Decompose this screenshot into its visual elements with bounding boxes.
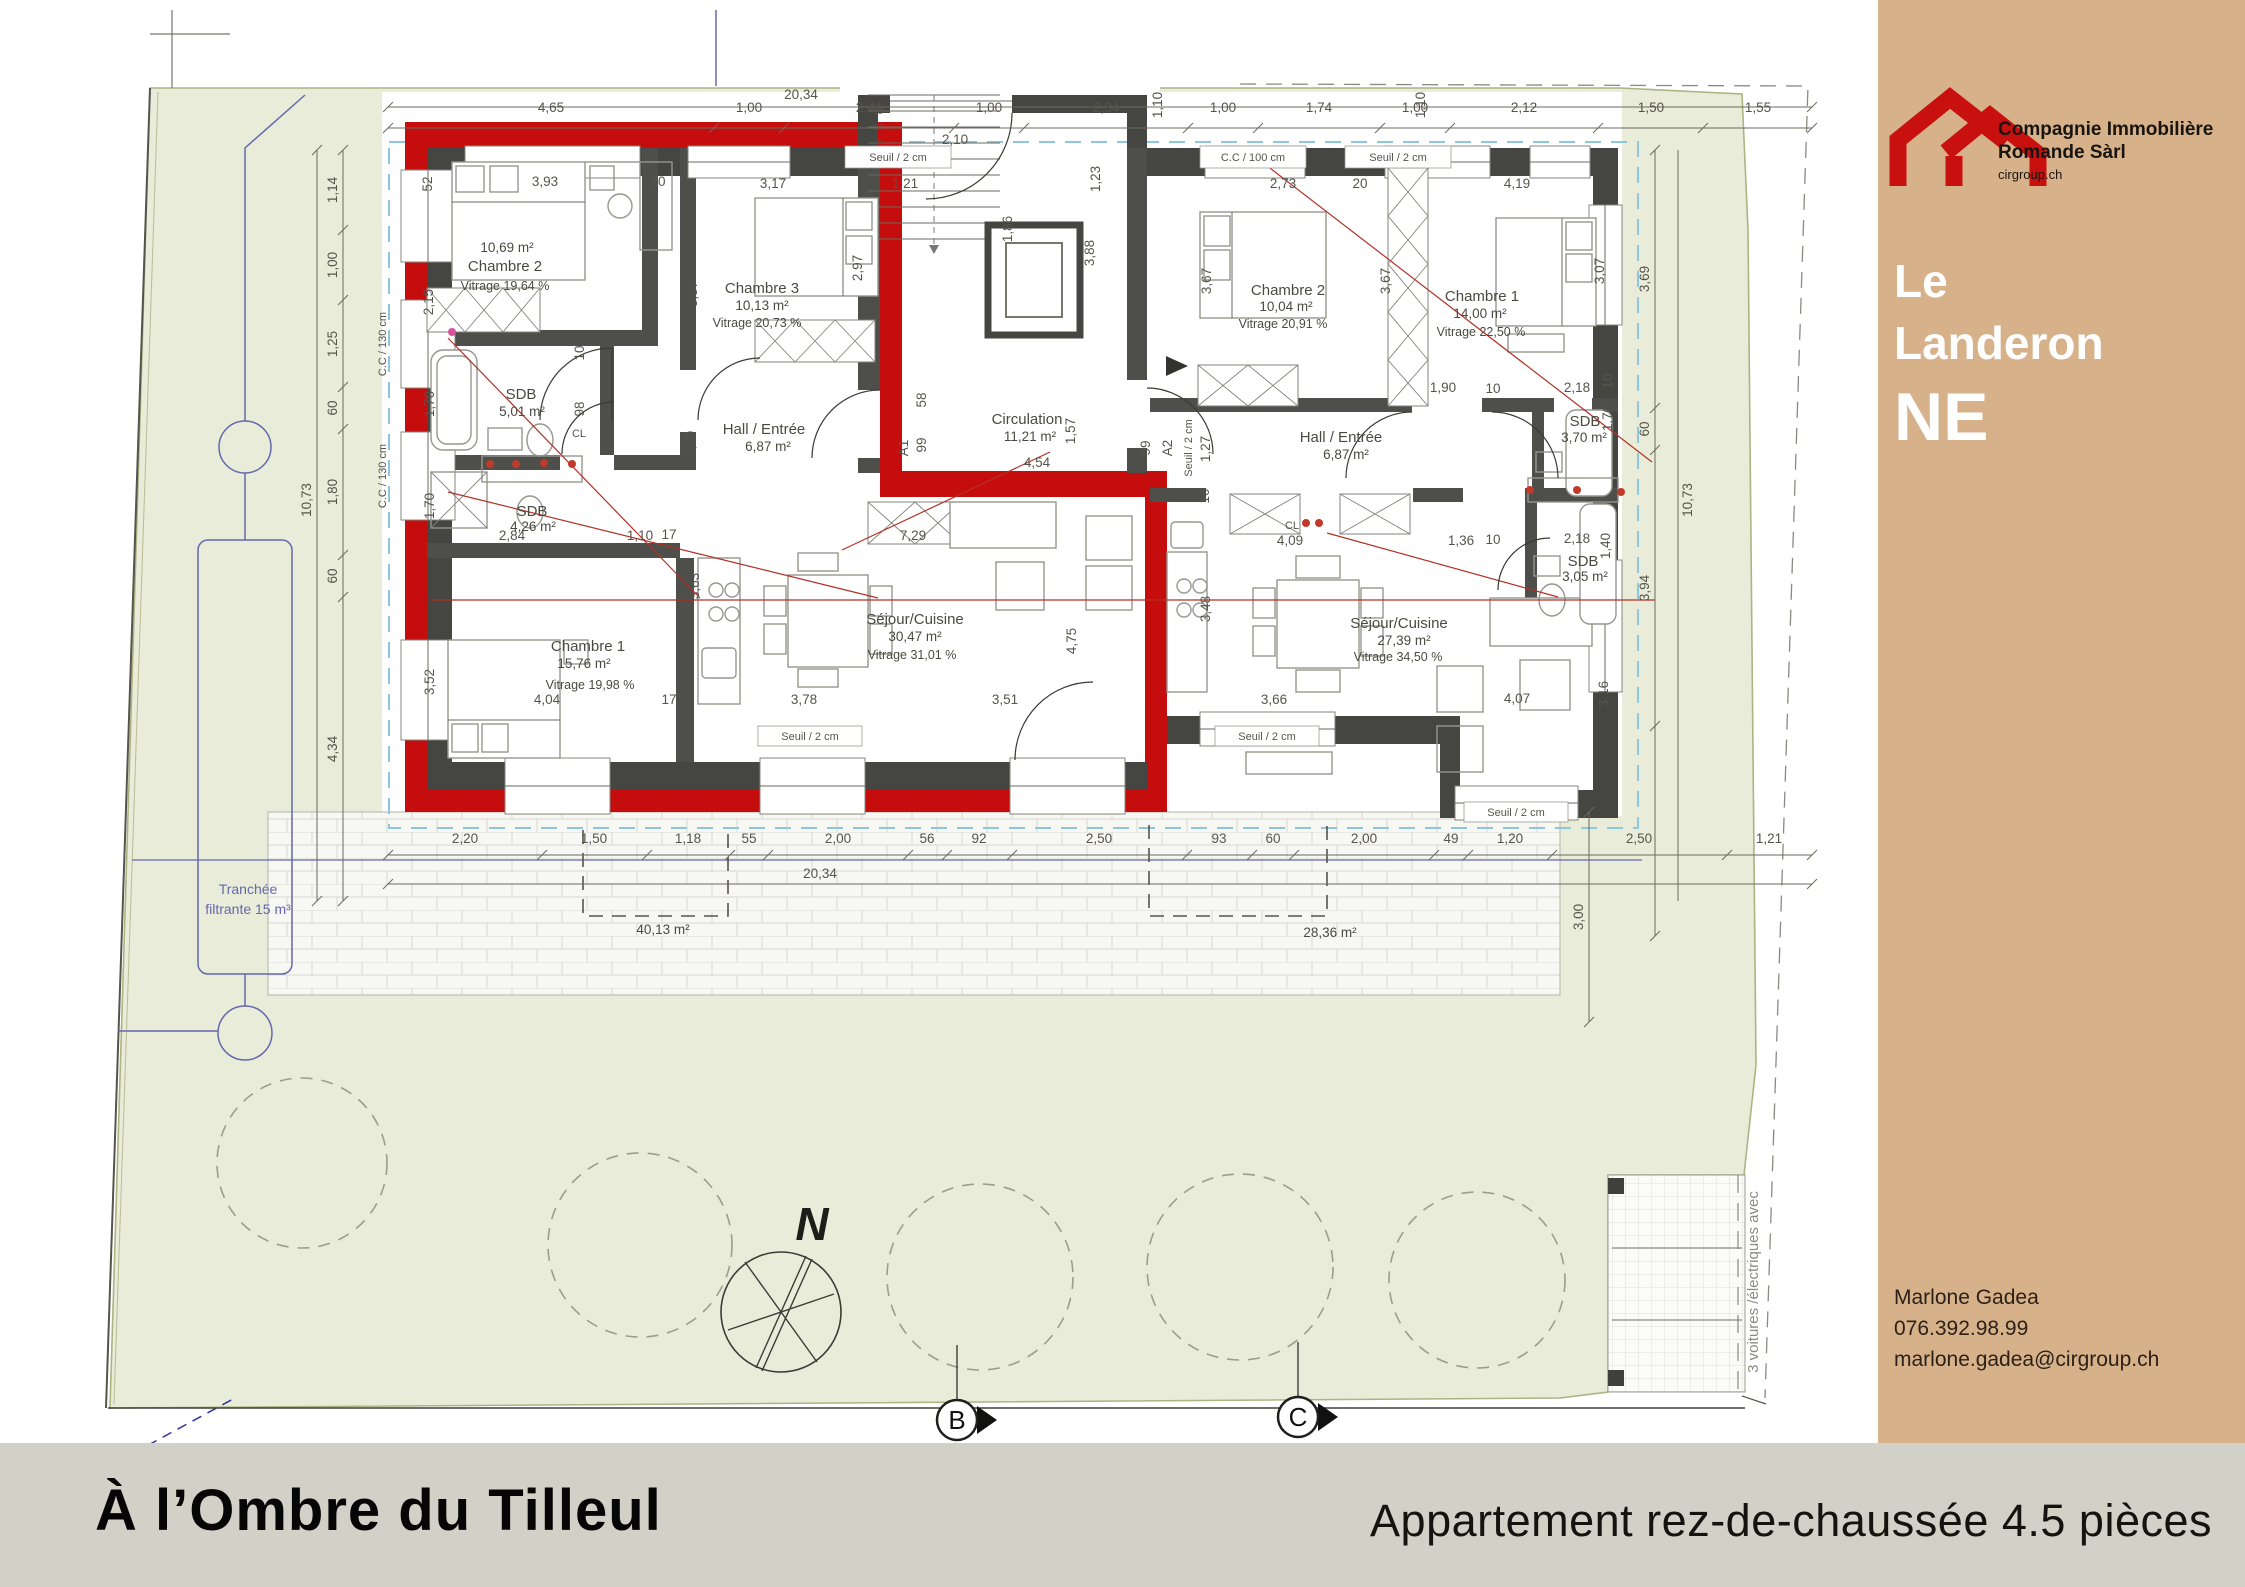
axis-b-label: B bbox=[948, 1405, 965, 1435]
svg-text:3,66: 3,66 bbox=[1261, 692, 1287, 707]
page: { "sidebar": { "logo": {"company_line1":… bbox=[0, 0, 2245, 1587]
svg-text:Vitrage 20,91 %: Vitrage 20,91 % bbox=[1239, 317, 1328, 331]
svg-text:Seuil / 2 cm: Seuil / 2 cm bbox=[1487, 807, 1544, 819]
svg-text:20: 20 bbox=[1352, 176, 1367, 191]
svg-text:Tranchée: Tranchée bbox=[219, 881, 278, 897]
svg-text:filtrante 15 m³: filtrante 15 m³ bbox=[205, 901, 291, 917]
svg-text:1,10: 1,10 bbox=[1150, 92, 1165, 118]
svg-text:3,05 m²: 3,05 m² bbox=[1562, 569, 1608, 584]
svg-text:4,26 m²: 4,26 m² bbox=[510, 519, 556, 534]
svg-text:Vitrage 31,01 %: Vitrage 31,01 % bbox=[868, 648, 957, 662]
svg-text:93: 93 bbox=[1211, 831, 1226, 846]
svg-text:3,69: 3,69 bbox=[1637, 266, 1652, 292]
svg-text:2,18: 2,18 bbox=[1564, 380, 1590, 395]
svg-text:1,36: 1,36 bbox=[1448, 533, 1474, 548]
svg-text:Seuil / 2 cm: Seuil / 2 cm bbox=[869, 152, 926, 164]
svg-text:60: 60 bbox=[325, 568, 340, 583]
svg-text:3,63: 3,63 bbox=[687, 573, 702, 599]
svg-text:10: 10 bbox=[1600, 373, 1615, 388]
title-line1: Le bbox=[1894, 250, 2104, 312]
svg-text:7,29: 7,29 bbox=[900, 528, 926, 543]
svg-text:4,19: 4,19 bbox=[1504, 176, 1530, 191]
svg-text:2,00: 2,00 bbox=[1351, 831, 1377, 846]
svg-text:28,36 m²: 28,36 m² bbox=[1303, 925, 1357, 940]
svg-text:1,21: 1,21 bbox=[892, 176, 918, 191]
svg-text:1,27: 1,27 bbox=[1198, 436, 1213, 462]
svg-text:40,13 m²: 40,13 m² bbox=[636, 922, 690, 937]
closet-label: CL bbox=[572, 428, 586, 440]
svg-text:10,73: 10,73 bbox=[1680, 483, 1695, 517]
svg-text:4,54: 4,54 bbox=[1024, 455, 1051, 470]
svg-text:52: 52 bbox=[420, 176, 435, 191]
company-logo-text: Compagnie Immobilière Romande Sàrl cirgr… bbox=[1998, 118, 2213, 182]
company-name-line2: Romande Sàrl bbox=[1998, 141, 2213, 164]
svg-text:Vitrage 19,98 %: Vitrage 19,98 % bbox=[546, 678, 635, 692]
svg-text:10,73: 10,73 bbox=[299, 483, 314, 517]
sidebar: Compagnie Immobilière Romande Sàrl cirgr… bbox=[1878, 0, 2245, 1443]
svg-text:C.C / 130 cm: C.C / 130 cm bbox=[377, 312, 389, 376]
svg-text:10,13 m²: 10,13 m² bbox=[735, 298, 789, 313]
svg-text:1,55: 1,55 bbox=[1745, 100, 1771, 115]
svg-text:99: 99 bbox=[914, 437, 929, 452]
svg-text:20,34: 20,34 bbox=[784, 87, 818, 102]
svg-text:4,65: 4,65 bbox=[538, 100, 564, 115]
title-line2: Landeron bbox=[1894, 312, 2104, 374]
svg-text:SDB: SDB bbox=[517, 503, 548, 520]
svg-text:1,57: 1,57 bbox=[1063, 418, 1078, 444]
svg-text:2,97: 2,97 bbox=[850, 255, 865, 281]
svg-text:A1: A1 bbox=[896, 440, 911, 457]
svg-text:27,39 m²: 27,39 m² bbox=[1377, 633, 1431, 648]
svg-text:1,21: 1,21 bbox=[1756, 831, 1782, 846]
svg-text:SDB: SDB bbox=[1570, 413, 1601, 430]
svg-text:1,10: 1,10 bbox=[627, 528, 653, 543]
svg-text:Seuil / 2 cm: Seuil / 2 cm bbox=[781, 731, 838, 743]
svg-text:17: 17 bbox=[661, 527, 676, 542]
svg-text:20,34: 20,34 bbox=[803, 866, 837, 881]
svg-text:1,50: 1,50 bbox=[581, 831, 607, 846]
svg-text:2,00: 2,00 bbox=[825, 831, 851, 846]
svg-text:4,09: 4,09 bbox=[1277, 533, 1303, 548]
svg-text:6,87 m²: 6,87 m² bbox=[745, 439, 791, 454]
svg-text:3,00: 3,00 bbox=[1571, 904, 1586, 930]
svg-text:1,00: 1,00 bbox=[325, 252, 340, 278]
svg-text:4,34: 4,34 bbox=[325, 735, 340, 762]
svg-text:3,51: 3,51 bbox=[992, 692, 1018, 707]
svg-text:1,23: 1,23 bbox=[1088, 166, 1103, 192]
svg-text:2,34: 2,34 bbox=[1093, 100, 1120, 115]
svg-text:1,25: 1,25 bbox=[325, 331, 340, 357]
svg-text:10: 10 bbox=[1485, 532, 1500, 547]
svg-text:1,86: 1,86 bbox=[1000, 216, 1015, 242]
parking-note: 3 voitures /électriques avec bbox=[1745, 1191, 1762, 1373]
svg-text:Vitrage 20,73 %: Vitrage 20,73 % bbox=[713, 316, 802, 330]
svg-text:3,57: 3,57 bbox=[685, 281, 700, 307]
special-dot bbox=[448, 328, 456, 336]
svg-text:3,48: 3,48 bbox=[1198, 596, 1213, 622]
svg-text:49: 49 bbox=[1443, 831, 1458, 846]
svg-text:3,67: 3,67 bbox=[1378, 268, 1393, 294]
svg-text:5,01 m²: 5,01 m² bbox=[499, 404, 545, 419]
svg-text:60: 60 bbox=[325, 400, 340, 415]
svg-text:14,00 m²: 14,00 m² bbox=[1453, 306, 1507, 321]
svg-text:2,12: 2,12 bbox=[1511, 100, 1537, 115]
svg-text:10: 10 bbox=[1197, 488, 1212, 503]
svg-text:4,07: 4,07 bbox=[1504, 691, 1530, 706]
svg-text:1,80: 1,80 bbox=[325, 479, 340, 505]
svg-text:SDB: SDB bbox=[506, 386, 537, 403]
svg-text:99: 99 bbox=[1138, 440, 1153, 455]
svg-text:Chambre 3: Chambre 3 bbox=[725, 280, 799, 297]
svg-text:Seuil / 2 cm: Seuil / 2 cm bbox=[1183, 419, 1195, 476]
svg-text:60: 60 bbox=[1637, 421, 1652, 436]
company-website: cirgroup.ch bbox=[1998, 167, 2213, 182]
svg-text:1,20: 1,20 bbox=[1497, 831, 1523, 846]
svg-text:A2: A2 bbox=[1160, 440, 1175, 457]
svg-text:60: 60 bbox=[1265, 831, 1280, 846]
svg-text:1,70: 1,70 bbox=[422, 493, 437, 519]
svg-text:3,88: 3,88 bbox=[1082, 240, 1097, 266]
svg-text:56: 56 bbox=[919, 831, 934, 846]
svg-text:1,10: 1,10 bbox=[1413, 92, 1428, 118]
contact-name: Marlone Gadea bbox=[1894, 1282, 2159, 1313]
listing-title: Le Landeron NE bbox=[1894, 250, 2104, 460]
svg-text:1,70: 1,70 bbox=[1600, 405, 1615, 431]
svg-text:2,18: 2,18 bbox=[1564, 531, 1590, 546]
svg-text:C.C / 130 cm: C.C / 130 cm bbox=[377, 444, 389, 508]
svg-text:3,16: 3,16 bbox=[1596, 681, 1611, 707]
svg-text:10: 10 bbox=[572, 345, 587, 360]
contact-email: marlone.gadea@cirgroup.ch bbox=[1894, 1344, 2159, 1375]
svg-text:Séjour/Cuisine: Séjour/Cuisine bbox=[866, 611, 964, 628]
svg-text:4,75: 4,75 bbox=[1064, 628, 1079, 654]
svg-text:Chambre 1: Chambre 1 bbox=[1445, 288, 1519, 305]
svg-text:30,47 m²: 30,47 m² bbox=[888, 629, 942, 644]
project-name: À l’Ombre du Tilleul bbox=[95, 1477, 662, 1544]
svg-text:11,21 m²: 11,21 m² bbox=[1004, 429, 1057, 444]
svg-text:1,20: 1,20 bbox=[683, 431, 698, 457]
room-name: Chambre 2 bbox=[468, 258, 542, 275]
svg-text:1,40: 1,40 bbox=[1598, 533, 1613, 559]
svg-text:10: 10 bbox=[1485, 381, 1500, 396]
svg-text:3,93: 3,93 bbox=[532, 174, 558, 189]
svg-text:Circulation: Circulation bbox=[992, 411, 1063, 428]
footer-bar: À l’Ombre du Tilleul Appartement rez-de-… bbox=[0, 1443, 2245, 1587]
svg-text:1,50: 1,50 bbox=[1638, 100, 1664, 115]
svg-text:Seuil / 2 cm: Seuil / 2 cm bbox=[1369, 152, 1426, 164]
svg-text:2,73: 2,73 bbox=[1270, 176, 1296, 191]
svg-text:C.C / 100 cm: C.C / 100 cm bbox=[1221, 152, 1285, 164]
svg-text:SDB: SDB bbox=[1568, 553, 1599, 570]
svg-text:3,78: 3,78 bbox=[791, 692, 817, 707]
svg-text:15,76 m²: 15,76 m² bbox=[557, 656, 611, 671]
svg-text:Seuil / 2 cm: Seuil / 2 cm bbox=[1238, 731, 1295, 743]
svg-text:Chambre 2: Chambre 2 bbox=[1251, 282, 1325, 299]
north-label: N bbox=[795, 1198, 829, 1250]
svg-text:1,00: 1,00 bbox=[736, 100, 762, 115]
svg-text:Vitrage 22,50 %: Vitrage 22,50 % bbox=[1437, 325, 1526, 339]
svg-text:3,94: 3,94 bbox=[1637, 574, 1652, 601]
svg-text:17: 17 bbox=[661, 692, 676, 707]
svg-text:58: 58 bbox=[914, 392, 929, 407]
svg-text:1,18: 1,18 bbox=[675, 831, 701, 846]
room-vitrage: Vitrage 19,64 % bbox=[461, 279, 550, 293]
svg-text:10,04 m²: 10,04 m² bbox=[1259, 299, 1313, 314]
room-area: 10,69 m² bbox=[480, 240, 534, 255]
svg-text:1,14: 1,14 bbox=[325, 176, 340, 203]
contact-phone: 076.392.98.99 bbox=[1894, 1313, 2159, 1344]
svg-text:Séjour/Cuisine: Séjour/Cuisine bbox=[1350, 615, 1448, 632]
svg-text:1,74: 1,74 bbox=[1306, 100, 1333, 115]
svg-text:98: 98 bbox=[572, 401, 587, 416]
svg-text:2,50: 2,50 bbox=[1626, 831, 1652, 846]
svg-text:55: 55 bbox=[741, 831, 756, 846]
svg-text:2,10: 2,10 bbox=[942, 132, 968, 147]
svg-text:Chambre 1: Chambre 1 bbox=[551, 638, 625, 655]
closet-label: CL bbox=[1285, 520, 1299, 532]
title-canton: NE bbox=[1894, 374, 2104, 460]
svg-text:2,15: 2,15 bbox=[421, 289, 436, 315]
svg-text:3,07: 3,07 bbox=[1592, 258, 1607, 284]
axis-c-label: C bbox=[1289, 1402, 1308, 1432]
svg-text:Hall / Entrée: Hall / Entrée bbox=[1300, 429, 1383, 446]
svg-text:3,52: 3,52 bbox=[422, 669, 437, 695]
svg-text:Hall / Entrée: Hall / Entrée bbox=[723, 421, 806, 438]
svg-text:2,20: 2,20 bbox=[452, 831, 478, 846]
svg-text:1,00: 1,00 bbox=[976, 100, 1002, 115]
svg-text:4,04: 4,04 bbox=[534, 692, 561, 707]
svg-text:1,70: 1,70 bbox=[422, 391, 437, 417]
svg-text:3,67: 3,67 bbox=[1199, 268, 1214, 294]
contact-block: Marlone Gadea 076.392.98.99 marlone.gade… bbox=[1894, 1282, 2159, 1375]
svg-text:6,87 m²: 6,87 m² bbox=[1323, 447, 1369, 462]
svg-text:Vitrage 34,50 %: Vitrage 34,50 % bbox=[1354, 650, 1443, 664]
svg-text:2,44: 2,44 bbox=[856, 100, 883, 115]
svg-text:1,00: 1,00 bbox=[1210, 100, 1236, 115]
svg-text:20: 20 bbox=[650, 174, 665, 189]
svg-text:3,70 m²: 3,70 m² bbox=[1561, 430, 1607, 445]
company-name-line1: Compagnie Immobilière bbox=[1998, 118, 2213, 141]
svg-text:3,17: 3,17 bbox=[760, 176, 786, 191]
parking: 3 voitures /électriques avec bbox=[1608, 1175, 1766, 1404]
svg-text:92: 92 bbox=[971, 831, 986, 846]
apartment-label: Appartement rez-de-chaussée 4.5 pièces bbox=[1370, 1495, 2212, 1547]
svg-text:2,50: 2,50 bbox=[1086, 831, 1112, 846]
svg-text:1,90: 1,90 bbox=[1430, 380, 1456, 395]
